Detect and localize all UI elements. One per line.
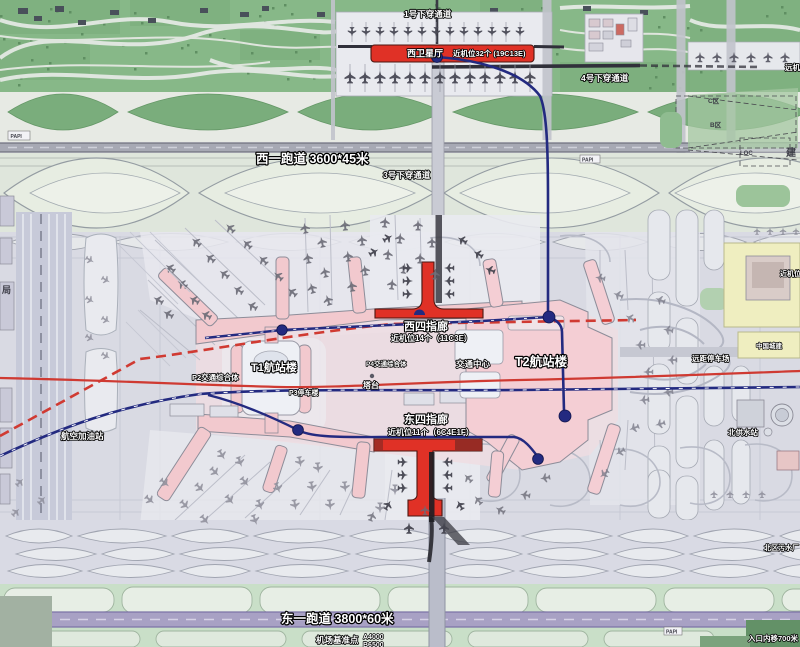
- svg-text:航空加油站: 航空加油站: [61, 431, 104, 441]
- svg-text:1号下穿通道: 1号下穿通道: [404, 9, 452, 19]
- svg-text:近机位14个（11C3E）: 近机位14个（11C3E）: [391, 333, 472, 343]
- svg-text:LOC: LOC: [740, 151, 753, 157]
- svg-text:机场基准点: 机场基准点: [316, 635, 359, 645]
- svg-text:西一跑道 3600*45米: 西一跑道 3600*45米: [256, 151, 369, 166]
- svg-text:4号下穿通道: 4号下穿通道: [581, 73, 629, 83]
- svg-text:近机位11个（6C4E1F）: 近机位11个（6C4E1F）: [388, 427, 474, 437]
- svg-text:东四指廊: 东四指廊: [404, 412, 448, 426]
- svg-text:东一跑道 3800*60米: 东一跑道 3800*60米: [281, 611, 394, 626]
- svg-text:B6500: B6500: [363, 642, 384, 647]
- svg-text:远机位: 远机位: [785, 62, 800, 72]
- svg-text:远距停车场: 远距停车场: [692, 353, 730, 363]
- svg-text:PAPI: PAPI: [666, 630, 678, 636]
- svg-text:局: 局: [2, 285, 11, 295]
- svg-text:P4交通综合体: P4交通综合体: [366, 359, 407, 368]
- svg-text:建: 建: [785, 146, 797, 159]
- svg-text:近机位: 近机位: [780, 269, 800, 278]
- svg-text:入口内移700米: 入口内移700米: [747, 633, 799, 643]
- svg-text:近机位32个 (19C13E): 近机位32个 (19C13E): [453, 48, 526, 58]
- svg-text:PAPI: PAPI: [582, 158, 594, 164]
- svg-text:西四指廊: 西四指廊: [404, 319, 448, 333]
- svg-text:塔台: 塔台: [363, 380, 379, 390]
- svg-text:T2航站楼: T2航站楼: [515, 354, 568, 369]
- svg-text:T1航站楼: T1航站楼: [251, 360, 297, 374]
- svg-text:A4000: A4000: [363, 634, 384, 641]
- svg-text:B区: B区: [710, 121, 722, 129]
- svg-text:PAPI: PAPI: [11, 134, 23, 140]
- svg-text:C区: C区: [708, 97, 720, 105]
- svg-text:P2交通综合体: P2交通综合体: [192, 372, 239, 382]
- svg-text:交通中心: 交通中心: [456, 359, 491, 369]
- svg-text:P3停车楼: P3停车楼: [289, 388, 319, 397]
- svg-text:中国城建: 中国城建: [756, 341, 783, 350]
- svg-text:北供水站: 北供水站: [728, 427, 758, 437]
- svg-text:3号下穿通道: 3号下穿通道: [383, 170, 431, 180]
- svg-text:西卫星厅: 西卫星厅: [407, 49, 443, 59]
- svg-text:北区污水厂: 北区污水厂: [764, 543, 799, 552]
